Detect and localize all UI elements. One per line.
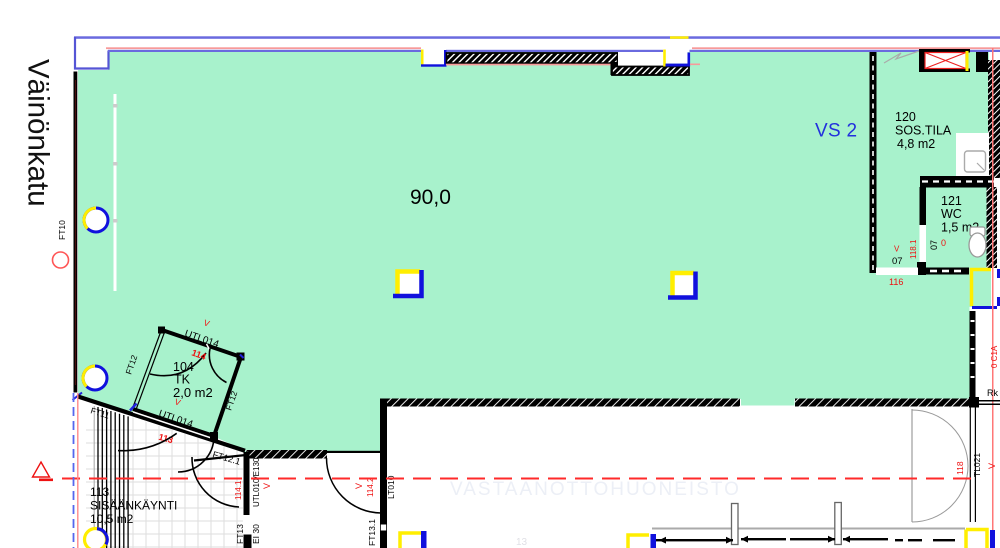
svg-text:V: V	[987, 463, 997, 469]
svg-text:V: V	[354, 483, 364, 489]
svg-text:120: 120	[895, 110, 916, 124]
svg-text:0 C1A: 0 C1A	[990, 345, 999, 368]
svg-text:118.1: 118.1	[909, 239, 918, 259]
svg-text:Rk: Rk	[987, 388, 998, 398]
svg-text:13: 13	[516, 537, 528, 548]
svg-text:07: 07	[929, 240, 939, 250]
svg-text:113: 113	[90, 485, 109, 499]
svg-text:FT13: FT13	[235, 524, 245, 544]
svg-text:121: 121	[941, 194, 962, 208]
svg-text:SISÄÄNKÄYNTI: SISÄÄNKÄYNTI	[90, 499, 177, 513]
svg-text:118: 118	[955, 461, 965, 475]
svg-text:FT10: FT10	[57, 220, 67, 240]
svg-text:116: 116	[889, 277, 903, 287]
svg-text:90,0: 90,0	[410, 186, 451, 209]
svg-text:TL021: TL021	[972, 453, 982, 477]
svg-text:4,8 m2: 4,8 m2	[897, 137, 935, 151]
svg-text:V: V	[262, 483, 272, 489]
svg-text:FT13.1: FT13.1	[367, 519, 377, 546]
svg-text:WC: WC	[941, 207, 962, 221]
svg-text:VS 2: VS 2	[815, 121, 857, 142]
svg-text:114.2: 114.2	[366, 477, 375, 497]
svg-text:114.1: 114.1	[234, 480, 243, 500]
svg-text:Väinönkatu: Väinönkatu	[22, 59, 55, 207]
svg-text:10,5 m2: 10,5 m2	[90, 512, 134, 526]
svg-text:UTL010/E130: UTL010/E130	[252, 457, 261, 507]
svg-text:07: 07	[892, 256, 903, 267]
svg-text:SOS.TILA: SOS.TILA	[895, 124, 952, 138]
svg-text:VASTAANOTTOHUONEISTO: VASTAANOTTOHUONEISTO	[450, 479, 741, 500]
svg-text:EI 30: EI 30	[251, 524, 261, 544]
svg-text:V: V	[894, 245, 900, 254]
svg-text:0: 0	[941, 238, 946, 248]
